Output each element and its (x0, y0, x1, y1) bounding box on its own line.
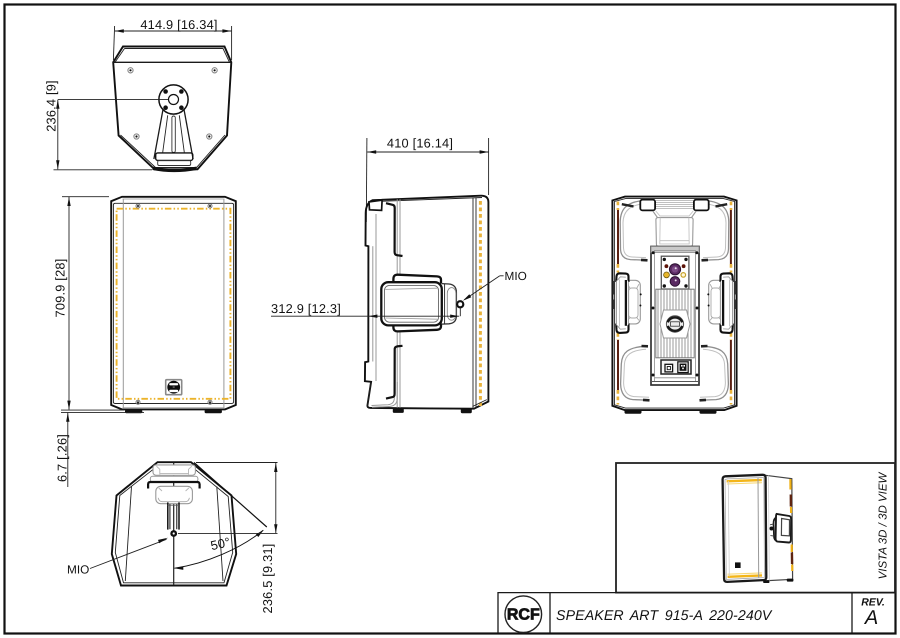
svg-text:236.5 [9.31]: 236.5 [9.31] (260, 544, 275, 614)
svg-text:MIO: MIO (67, 563, 89, 577)
svg-text:236.4 [9]: 236.4 [9] (44, 80, 59, 132)
svg-text:MIO: MIO (505, 269, 527, 283)
svg-text:312.9 [12.3]: 312.9 [12.3] (271, 301, 341, 316)
svg-text:A: A (864, 607, 878, 629)
svg-text:VISTA 3D / 3D VIEW: VISTA 3D / 3D VIEW (878, 471, 890, 579)
svg-text:6.7 [.26]: 6.7 [.26] (54, 434, 69, 482)
svg-text:709.9 [28]: 709.9 [28] (53, 259, 68, 318)
svg-text:SPEAKER ART 915-A 220-240V: SPEAKER ART 915-A 220-240V (556, 608, 773, 624)
svg-text:414.9 [16.34]: 414.9 [16.34] (140, 17, 217, 32)
svg-text:410 [16.14]: 410 [16.14] (387, 136, 453, 151)
svg-text:RCF: RCF (507, 607, 540, 624)
